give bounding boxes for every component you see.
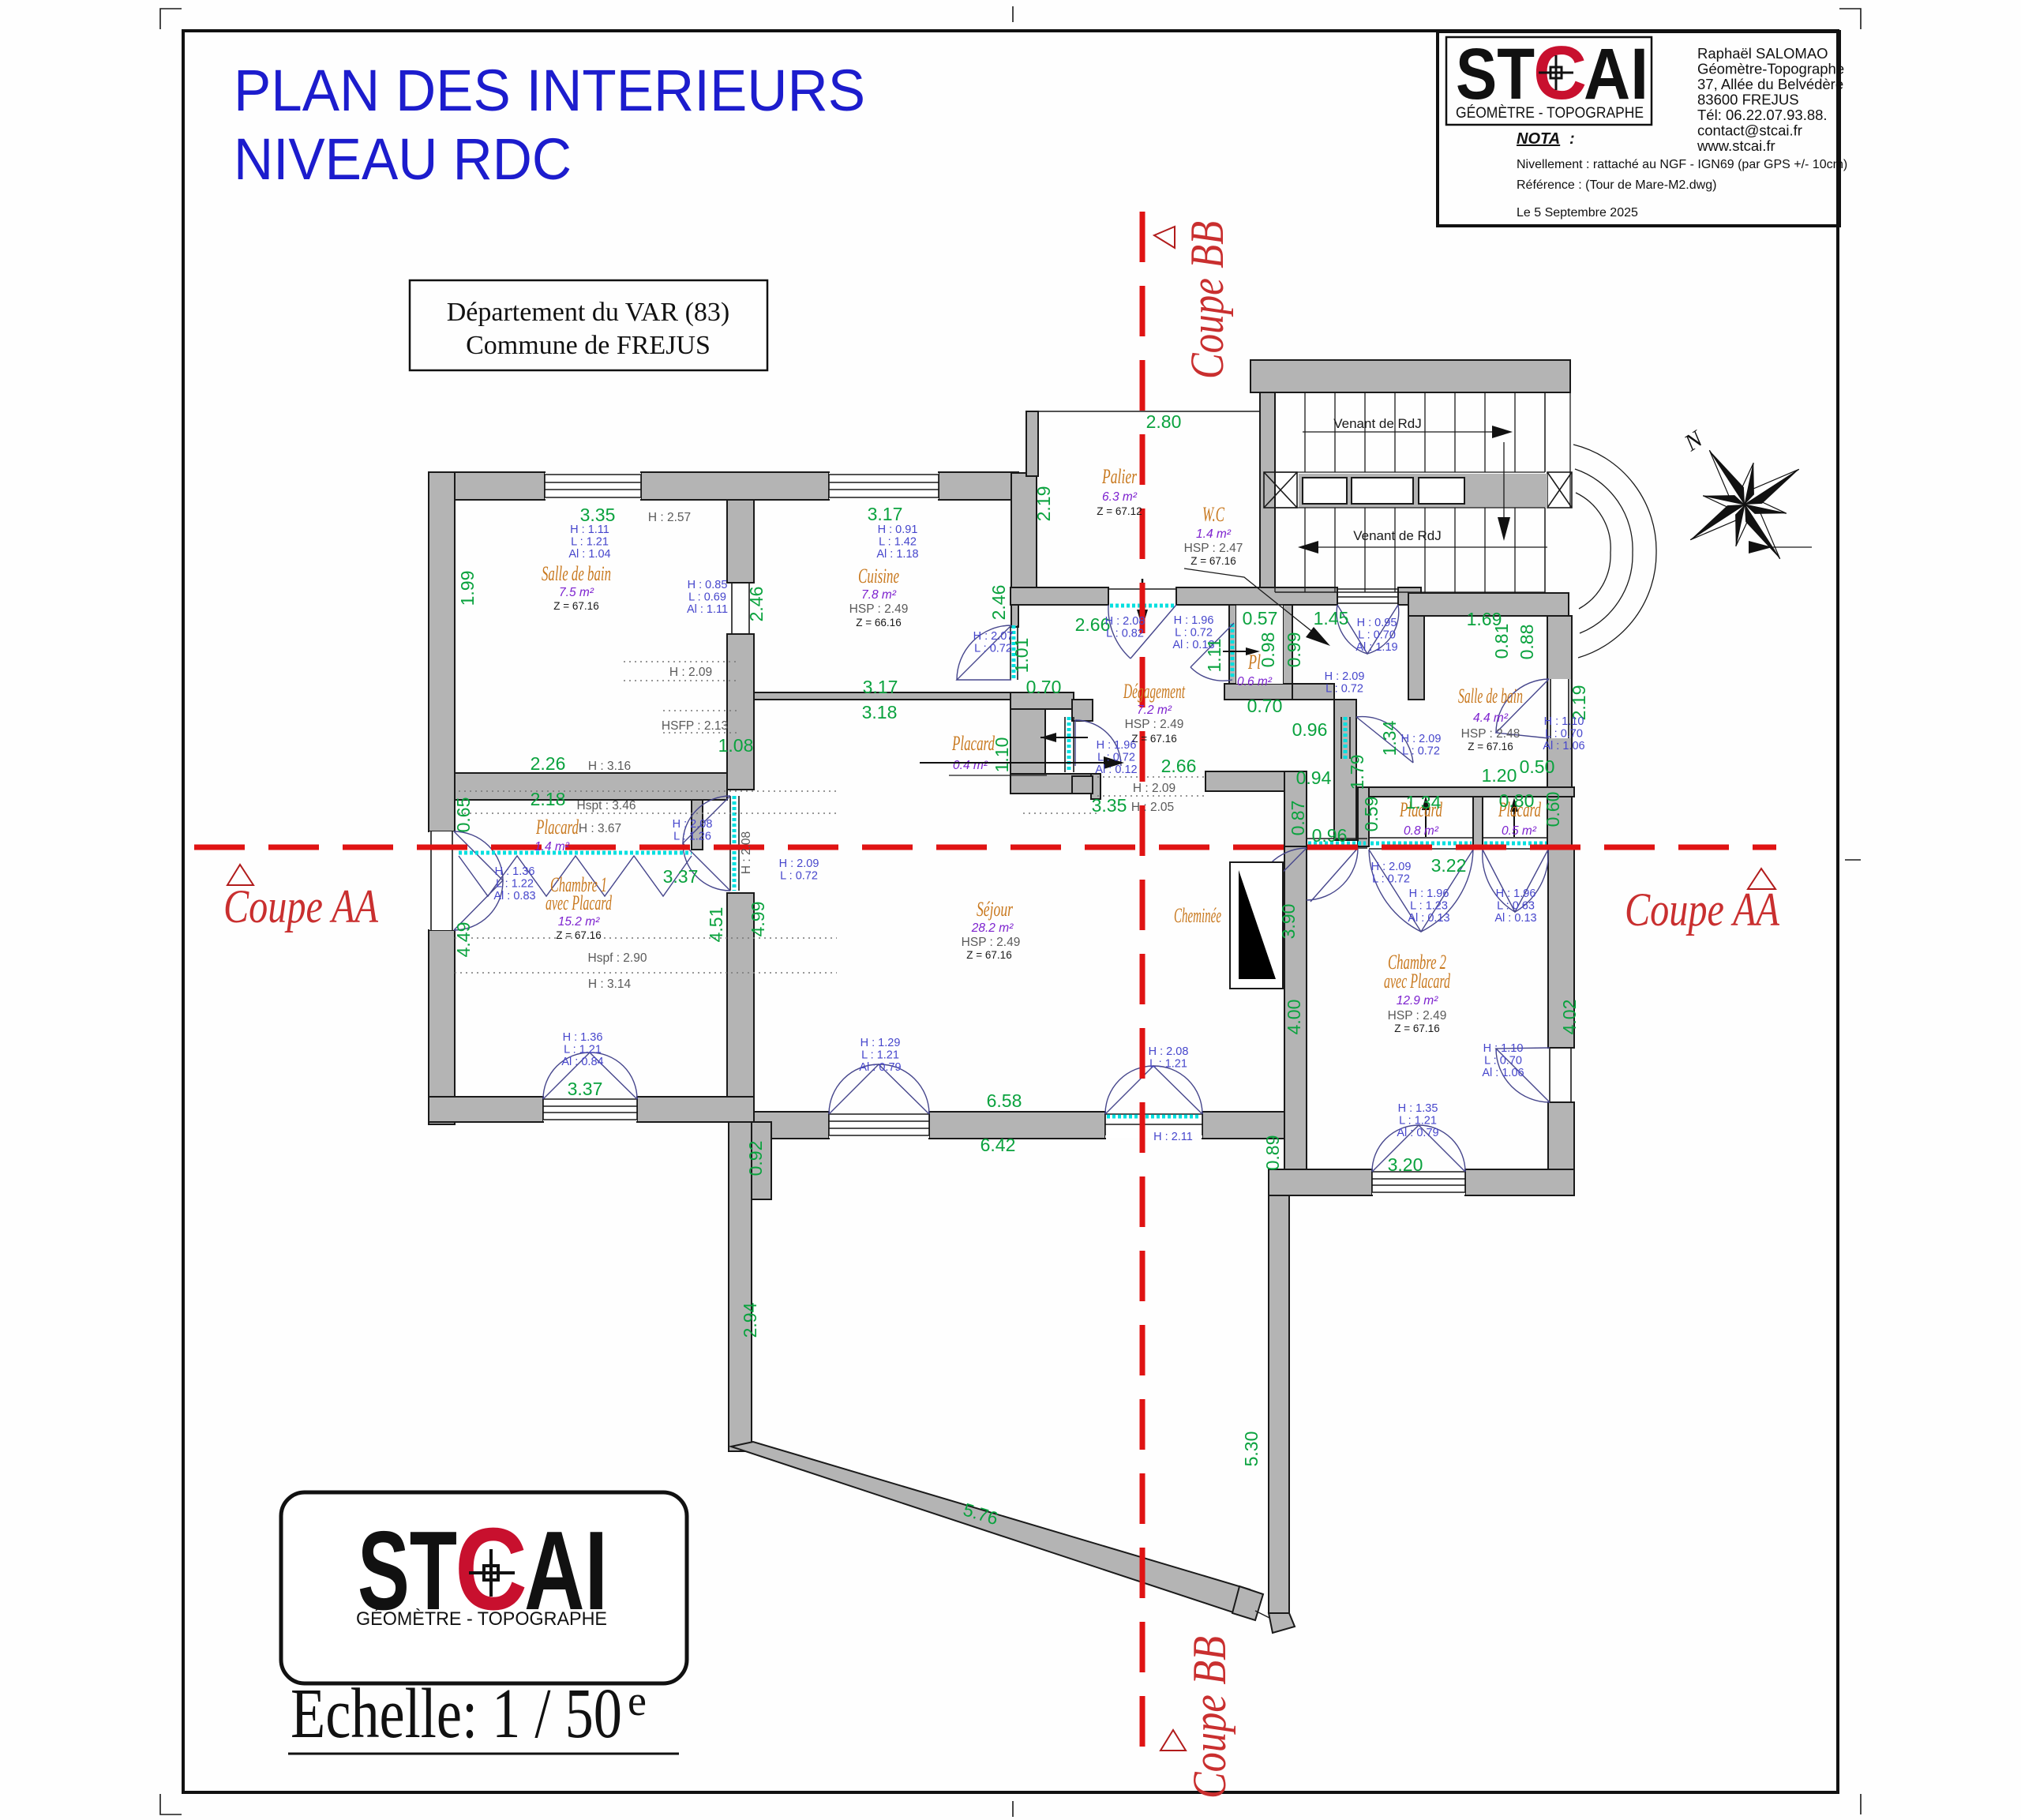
svg-text:L : 0.69: L : 0.69 [688,591,726,604]
svg-text:NIVEAU RDC: NIVEAU RDC [234,126,572,192]
svg-text:4.99: 4.99 [748,902,768,937]
svg-text:Cuisine: Cuisine [858,565,899,587]
svg-text::: : [1569,130,1575,148]
svg-text:2.46: 2.46 [988,585,1009,621]
svg-text:GÉOMÈTRE - TOPOGRAPHE: GÉOMÈTRE - TOPOGRAPHE [356,1608,607,1630]
svg-text:L : 1.26: L : 1.26 [673,831,711,843]
svg-text:H : 1.36: H : 1.36 [495,865,535,878]
svg-text:0.70: 0.70 [1026,677,1062,697]
svg-text:L : 0.72: L : 0.72 [1175,627,1213,640]
svg-text:3.35: 3.35 [1092,795,1127,816]
svg-text:1.10: 1.10 [992,737,1012,773]
svg-text:Al : 1.19: Al : 1.19 [1355,641,1397,654]
svg-text:1.79: 1.79 [1347,755,1367,790]
svg-text:Al : 1.06: Al : 1.06 [1543,740,1584,752]
svg-text:3.20: 3.20 [1388,1154,1423,1175]
svg-text:Al : 1.18: Al : 1.18 [876,548,918,561]
svg-text:H : 1.96: H : 1.96 [1097,739,1137,752]
svg-text:0.6 m²: 0.6 m² [1237,675,1273,689]
svg-text:H : 3.16: H : 3.16 [588,760,631,773]
svg-text:15.2 m²: 15.2 m² [558,915,600,929]
svg-text:2.94: 2.94 [740,1302,760,1338]
svg-text:7.5 m²: 7.5 m² [559,586,594,599]
svg-text:Al : 0.13: Al : 0.13 [1408,912,1449,925]
svg-text:Cheminée: Cheminée [1174,904,1221,927]
svg-text:Z = 67.16: Z = 67.16 [966,949,1011,961]
svg-text:Nivellement : rattaché au NGF: Nivellement : rattaché au NGF - IGN69 (p… [1517,158,1847,171]
svg-text:L : 0.70: L : 0.70 [1545,728,1583,741]
svg-text:Z = 67.16: Z = 67.16 [1190,555,1235,567]
svg-text:H : 1.96: H : 1.96 [1174,614,1214,627]
svg-text:H : 3.67: H : 3.67 [579,822,621,835]
svg-text:Z = 67.12: Z = 67.12 [1097,505,1142,517]
svg-text:Al : 1.04: Al : 1.04 [568,548,610,561]
svg-text:Al : 0.79: Al : 0.79 [859,1061,901,1074]
svg-text:Z = 67.16: Z = 67.16 [1394,1023,1439,1034]
svg-text:Géomètre-Topographe: Géomètre-Topographe [1697,61,1844,77]
svg-text:3.37: 3.37 [568,1079,603,1099]
svg-text:L : 1.22: L : 1.22 [496,878,534,891]
svg-text:L : 1.21: L : 1.21 [571,536,609,549]
svg-text:Al : 1.06: Al : 1.06 [1482,1067,1524,1079]
svg-text:3.18: 3.18 [862,702,898,722]
svg-text:Tél: 06.22.07.93.88.: Tél: 06.22.07.93.88. [1697,107,1828,123]
svg-text:L : 0.70: L : 0.70 [1484,1055,1522,1068]
svg-text:1.99: 1.99 [457,571,478,606]
svg-text:0.99: 0.99 [1284,632,1304,668]
svg-text:avec Placard: avec Placard [546,891,613,914]
svg-text:ST: ST [1456,34,1535,114]
svg-text:H : 0.91: H : 0.91 [878,523,918,536]
svg-text:3.35: 3.35 [580,505,616,525]
svg-text:H : 0.85: H : 0.85 [688,579,728,591]
svg-text:L : 0.72: L : 0.72 [1402,745,1440,758]
svg-text:HSP : 2.48: HSP : 2.48 [1461,727,1520,741]
svg-text:L : 1.21: L : 1.21 [1399,1115,1437,1128]
svg-text:Al : 1.11: Al : 1.11 [687,603,728,616]
svg-text:3.37: 3.37 [663,866,699,887]
svg-text:Coupe BB: Coupe BB [1181,221,1233,379]
svg-text:avec Placard: avec Placard [1384,970,1451,993]
svg-text:e: e [628,1677,647,1724]
svg-text:0.92: 0.92 [745,1141,766,1176]
svg-text:H : 3.14: H : 3.14 [588,978,632,991]
svg-text:PLAN DES INTERIEURS: PLAN DES INTERIEURS [234,58,865,123]
svg-text:Le 5 Septembre 2025: Le 5 Septembre 2025 [1517,206,1638,220]
svg-text:W.C: W.C [1202,503,1224,526]
svg-text:Hspt : 3.46: Hspt : 3.46 [577,799,636,812]
svg-text:3.22: 3.22 [1431,855,1467,876]
svg-text:contact@stcai.fr: contact@stcai.fr [1697,122,1802,139]
svg-text:H : 2.09: H : 2.09 [1371,861,1412,873]
svg-text:2.80: 2.80 [1146,411,1182,432]
svg-text:Commune de FREJUS: Commune de FREJUS [466,331,711,360]
svg-text:L : 1.42: L : 1.42 [879,536,917,549]
svg-text:2.66: 2.66 [1161,756,1197,776]
svg-text:0.57: 0.57 [1243,608,1278,629]
svg-text:1.20: 1.20 [1482,765,1517,786]
svg-text:GÉOMÈTRE - TOPOGRAPHE: GÉOMÈTRE - TOPOGRAPHE [1456,105,1644,122]
svg-text:0.81: 0.81 [1491,624,1512,659]
svg-text:H : 2.09: H : 2.09 [1133,782,1175,795]
svg-text:H : 2.09: H : 2.09 [779,857,819,870]
svg-text:H : 1.10: H : 1.10 [1483,1042,1524,1055]
svg-text:4.4 m²: 4.4 m² [1473,711,1509,725]
svg-text:6.3 m²: 6.3 m² [1102,490,1138,504]
svg-text:H : 1.10: H : 1.10 [1544,715,1584,728]
svg-text:Venant de RdJ: Venant de RdJ [1353,528,1442,543]
svg-text:Palier: Palier [1101,465,1137,488]
svg-text:Coupe AA: Coupe AA [1625,884,1779,936]
svg-text:2.18: 2.18 [531,789,566,809]
svg-text:Al : 0.83: Al : 0.83 [493,890,535,902]
svg-text:H : 2.08: H : 2.08 [1105,615,1145,628]
svg-text:H : 2.09: H : 2.09 [1401,733,1442,745]
svg-text:Al : 0.84: Al : 0.84 [561,1056,603,1068]
svg-text:0.94: 0.94 [1296,767,1332,788]
svg-text:0.4 m²: 0.4 m² [953,759,988,772]
svg-text:L : 0.72: L : 0.72 [780,870,818,883]
svg-text:Al : 0.12: Al : 0.12 [1095,764,1137,776]
svg-text:6.42: 6.42 [981,1135,1016,1155]
svg-text:5.30: 5.30 [1241,1432,1262,1467]
svg-text:3.90: 3.90 [1278,904,1299,940]
svg-text:1.34: 1.34 [1379,720,1400,756]
svg-text:HSP : 2.47: HSP : 2.47 [1184,542,1243,555]
svg-text:7.2 m²: 7.2 m² [1137,704,1172,717]
svg-text:H : 1.29: H : 1.29 [861,1037,901,1049]
svg-text:H : 1.36: H : 1.36 [563,1031,603,1044]
svg-text:Placard: Placard [535,816,579,839]
svg-text:Dégagement: Dégagement [1123,680,1185,703]
svg-text:1.4 m²: 1.4 m² [534,840,570,854]
svg-text:0.88: 0.88 [1517,625,1537,660]
svg-text:0.59: 0.59 [1361,797,1382,832]
svg-text:2.46: 2.46 [746,587,767,622]
svg-text:0.50: 0.50 [1520,756,1555,777]
svg-text:L : 0.72: L : 0.72 [1325,683,1363,696]
svg-text:Z = 67.16: Z = 67.16 [1468,741,1513,752]
svg-text:4.00: 4.00 [1284,1000,1304,1035]
svg-text:H : 1.11: H : 1.11 [570,523,609,536]
svg-text:0.96: 0.96 [1292,719,1328,740]
svg-text:H : 1.35: H : 1.35 [1398,1102,1438,1115]
svg-text:L : 0.63: L : 0.63 [1497,900,1535,913]
svg-text:HSP : 2.49: HSP : 2.49 [962,936,1021,949]
svg-text:Venant de RdJ: Venant de RdJ [1333,416,1422,431]
svg-text:L : 1.23: L : 1.23 [1410,900,1448,913]
svg-text:H : 2.07: H : 2.07 [973,630,1014,643]
svg-text:37, Allée du Belvédère: 37, Allée du Belvédère [1697,76,1843,92]
svg-text:1.08: 1.08 [718,735,754,756]
svg-text:0.8 m²: 0.8 m² [1404,824,1439,838]
svg-text:1.45: 1.45 [1314,608,1349,629]
svg-text:0.98: 0.98 [1258,632,1278,668]
svg-text:28.2 m²: 28.2 m² [971,921,1014,935]
svg-text:6.58: 6.58 [987,1090,1022,1111]
svg-text:Séjour: Séjour [977,898,1014,921]
svg-text:Z = 67.16: Z = 67.16 [556,929,601,941]
svg-text:0.70: 0.70 [1247,696,1283,716]
svg-text:0.60: 0.60 [1543,792,1563,827]
svg-text:2.19: 2.19 [1033,486,1054,522]
svg-text:83600 FREJUS: 83600 FREJUS [1697,92,1799,108]
svg-text:1.11: 1.11 [1204,638,1224,672]
svg-text:Echelle: 1 / 50: Echelle: 1 / 50 [291,1675,622,1753]
svg-text:4.02: 4.02 [1559,1000,1580,1035]
svg-text:L : 0.72: L : 0.72 [974,643,1012,655]
svg-text:0.89: 0.89 [1262,1135,1283,1171]
svg-text:Placard: Placard [951,732,995,755]
svg-text:7.8 m²: 7.8 m² [861,588,897,602]
svg-text:H : 2.09: H : 2.09 [669,666,712,679]
svg-text:L : 0.82: L : 0.82 [1106,628,1144,640]
svg-text:H : 2.57: H : 2.57 [648,511,691,524]
svg-text:2.26: 2.26 [531,753,566,774]
svg-text:1.01: 1.01 [1011,638,1032,674]
svg-text:HSP : 2.49: HSP : 2.49 [1125,718,1184,731]
svg-text:H : 2.09: H : 2.09 [1325,670,1365,683]
svg-text:H : 1.96: H : 1.96 [1496,887,1536,900]
svg-text:Hspf : 2.90: Hspf : 2.90 [588,951,647,965]
svg-text:AI: AI [1584,34,1648,114]
svg-text:H : 2.08: H : 2.08 [740,831,753,874]
svg-text:HSFP : 2.13: HSFP : 2.13 [662,719,728,733]
svg-text:www.stcai.fr: www.stcai.fr [1697,137,1775,154]
svg-text:0.96: 0.96 [1312,825,1348,846]
svg-text:H : 2.05: H : 2.05 [1131,801,1174,814]
svg-text:Salle de bain: Salle de bain [542,562,611,585]
svg-text:Al : 0.79: Al : 0.79 [1397,1127,1438,1139]
svg-text:3.17: 3.17 [868,504,903,524]
svg-text:Z = 67.16: Z = 67.16 [1131,733,1176,745]
svg-text:H : 1.96: H : 1.96 [1409,887,1449,900]
svg-text:L : 1.21: L : 1.21 [861,1049,899,1062]
svg-text:Z = 66.16: Z = 66.16 [856,617,901,629]
svg-text:Salle de bain: Salle de bain [1458,685,1523,707]
svg-text:H : 2.11: H : 2.11 [1153,1131,1193,1143]
svg-text:Al : 0.13: Al : 0.13 [1494,912,1536,925]
svg-text:L : 1.21: L : 1.21 [1149,1058,1187,1071]
svg-text:L : 0.72: L : 0.72 [1097,752,1135,764]
svg-text:HSP : 2.49: HSP : 2.49 [849,602,909,616]
svg-text:4.51: 4.51 [706,907,726,943]
svg-text:L : 0.72: L : 0.72 [1372,873,1410,886]
svg-text:3.17: 3.17 [863,677,898,697]
svg-text:H : 0.95: H : 0.95 [1357,617,1397,629]
svg-text:NOTA: NOTA [1517,130,1560,148]
svg-text:12.9 m²: 12.9 m² [1397,994,1438,1008]
svg-text:HSP : 2.49: HSP : 2.49 [1388,1009,1447,1023]
svg-text:Raphaël SALOMAO: Raphaël SALOMAO [1697,45,1828,62]
svg-text:4.49: 4.49 [453,922,474,958]
svg-text:0.65: 0.65 [453,797,474,833]
svg-text:Département du VAR (83): Département du VAR (83) [447,298,730,327]
svg-text:Coupe BB: Coupe BB [1183,1636,1235,1799]
svg-text:0.80: 0.80 [1499,790,1535,811]
svg-text:0.87: 0.87 [1288,801,1308,836]
svg-text:Référence : (Tour de Mare-M2.d: Référence : (Tour de Mare-M2.dwg) [1517,178,1716,192]
svg-text:1.4 m²: 1.4 m² [1196,527,1232,541]
svg-text:Coupe AA: Coupe AA [223,880,378,933]
svg-text:L : 0.70: L : 0.70 [1358,629,1396,642]
svg-text:H : 2.08: H : 2.08 [1149,1045,1189,1058]
svg-text:L : 1.21: L : 1.21 [564,1044,602,1056]
svg-text:Z = 67.16: Z = 67.16 [553,600,598,612]
svg-text:0.5 m²: 0.5 m² [1502,824,1537,838]
svg-text:1.34: 1.34 [1406,792,1442,812]
svg-text:H : 2.08: H : 2.08 [673,818,713,831]
